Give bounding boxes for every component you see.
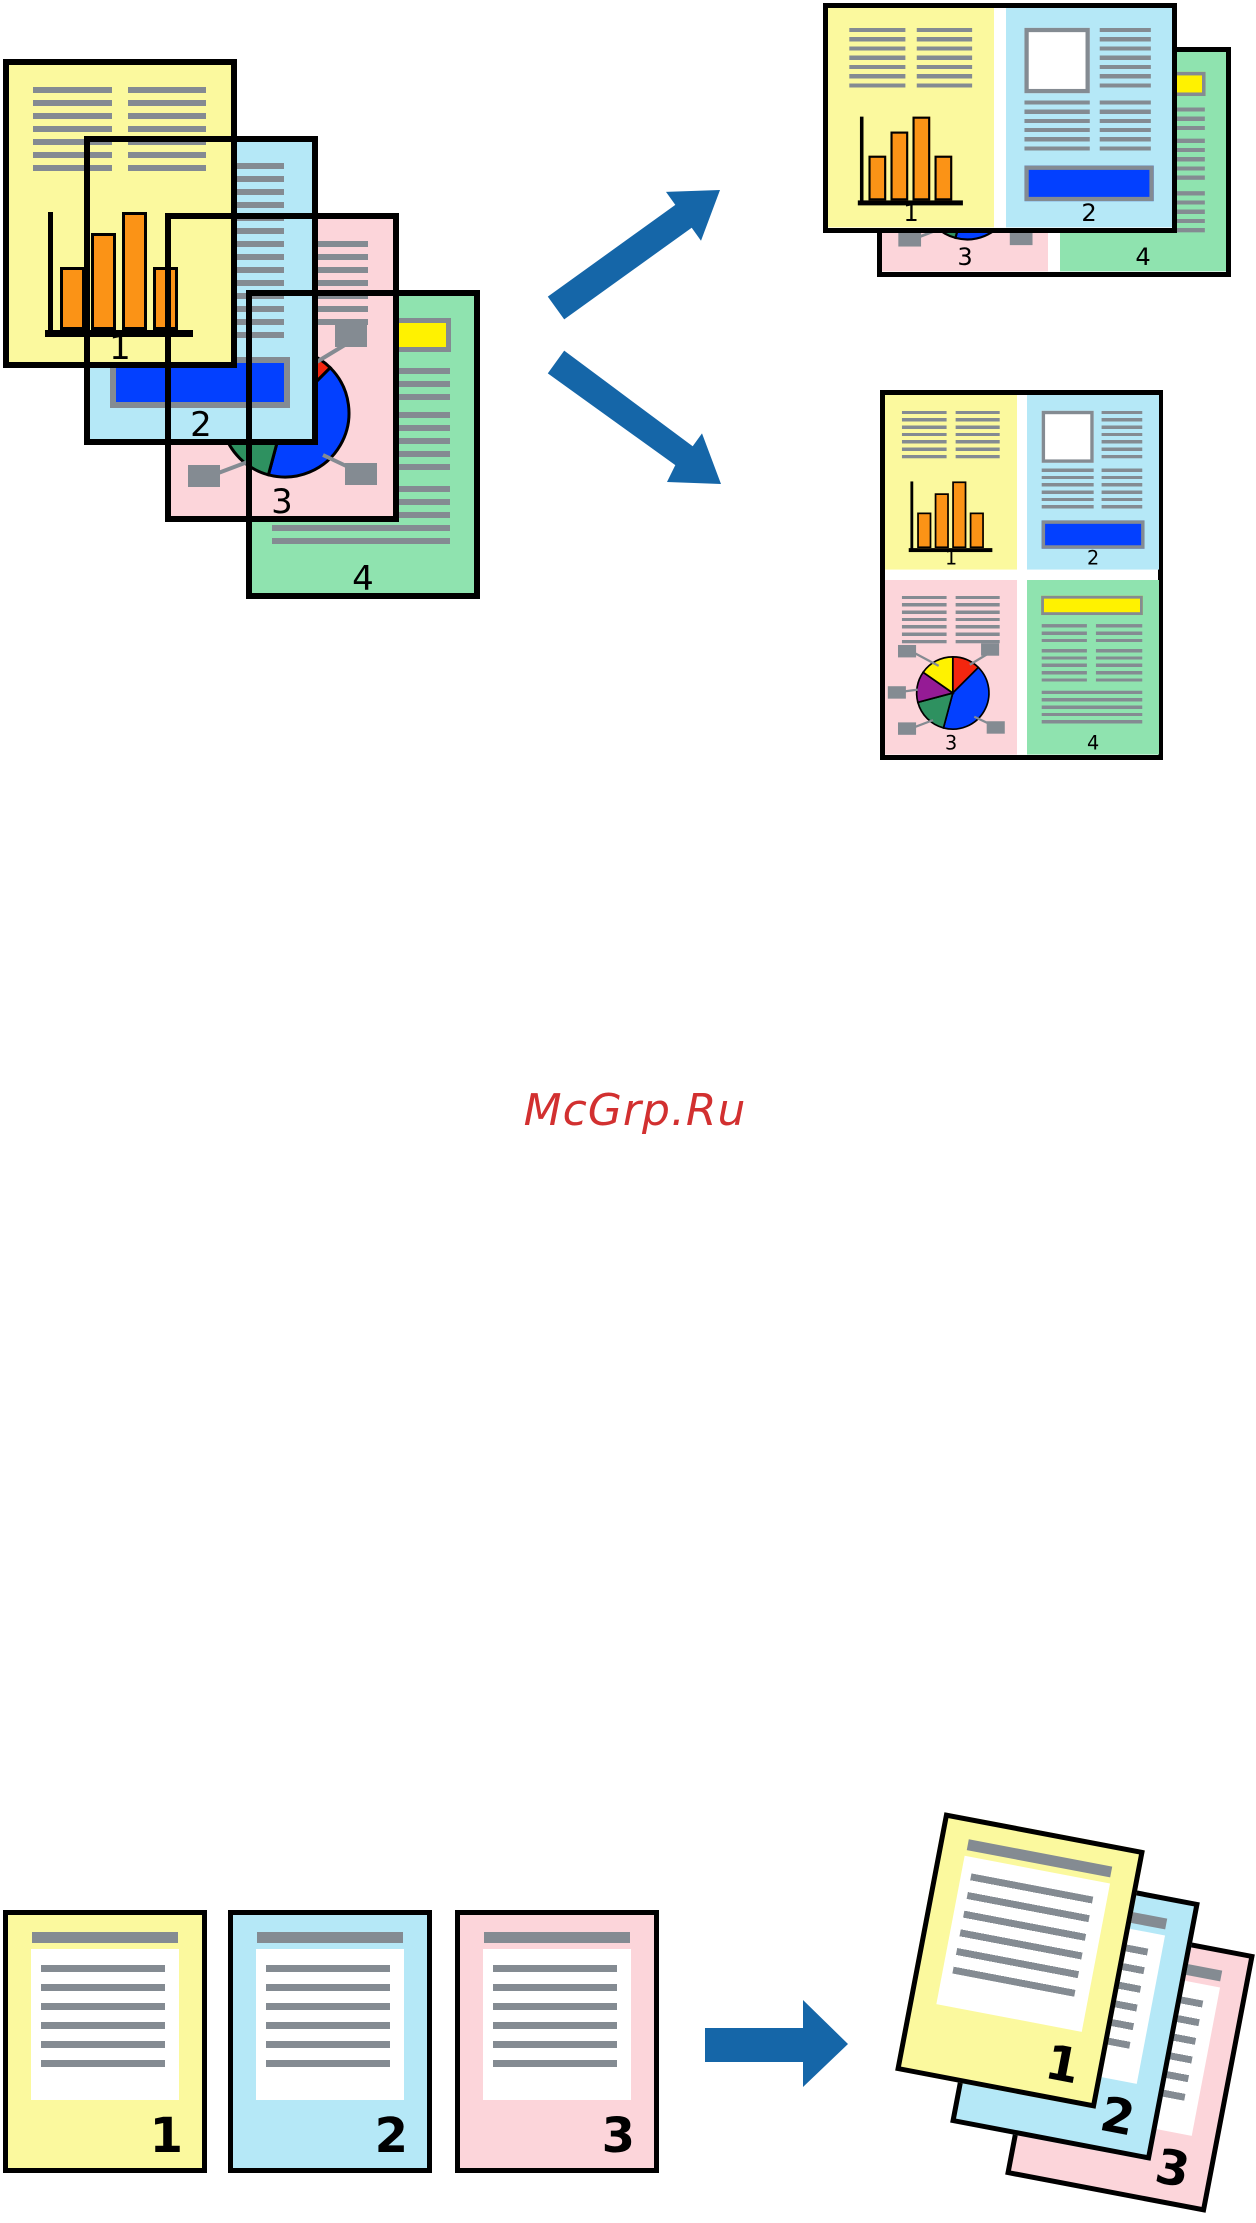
text-lines (849, 28, 905, 88)
page-number: 2 (1027, 549, 1159, 568)
page-number: 3 (602, 2112, 635, 2160)
two-up-sheet-front: 1 2 (823, 3, 1177, 233)
page-number: 4 (1027, 734, 1159, 753)
text-lines (1100, 100, 1151, 150)
four-up-sheet: 1 2 (880, 390, 1163, 760)
bar-chart-y-axis (910, 481, 913, 551)
two-up-page-2: 2 (1006, 8, 1172, 227)
two-up-front-right-half: 2 (1006, 8, 1172, 228)
arrow-up-right-icon (548, 190, 720, 319)
page-number: 4 (1060, 245, 1226, 269)
text-block (31, 1949, 179, 2100)
bar-chart-bar (868, 156, 886, 201)
text-lines (1096, 649, 1142, 682)
page-number: 2 (1006, 201, 1172, 225)
four-up-page-3: 3 (885, 580, 1017, 755)
text-lines (266, 1965, 390, 2067)
bar-chart-bar (890, 132, 908, 201)
text-lines (1100, 28, 1151, 88)
page-number: 4 (246, 562, 480, 596)
input-page-3: 3 (455, 1910, 659, 2173)
four-up-quadrant-1: 1 (885, 395, 1017, 570)
text-block (256, 1949, 404, 2100)
text-lines (1096, 624, 1142, 642)
bar-chart-bar (935, 493, 949, 548)
watermark-text: McGrp.Ru (420, 1085, 850, 1136)
pie-chart (885, 580, 1017, 755)
page-number: 1 (3, 331, 237, 365)
bar-chart-y-axis (860, 117, 864, 205)
nup-collate-illustration: 4 3 (0, 0, 1256, 2223)
title-bar (484, 1932, 630, 1943)
text-block (483, 1949, 631, 2100)
highlight-bar (1041, 596, 1143, 615)
input-page-1: 1 (3, 1910, 207, 2173)
page-number: 3 (885, 734, 1017, 753)
arrow-right-icon (705, 2000, 848, 2087)
text-lines (917, 28, 972, 88)
bar-chart-bar (912, 117, 930, 201)
page-number: 3 (882, 245, 1048, 269)
text-lines (41, 1965, 165, 2067)
text-block (936, 1856, 1110, 2032)
title-bar (257, 1932, 403, 1943)
bar-chart-bar (935, 156, 953, 201)
text-lines (956, 411, 1000, 458)
bar-chart-bar (153, 267, 178, 330)
text-lines (952, 1873, 1093, 1996)
text-lines (493, 1965, 617, 2067)
text-lines (1024, 100, 1089, 150)
title-bar (32, 1932, 178, 1943)
text-lines (33, 87, 112, 171)
four-up-page-4: 4 (1027, 580, 1159, 755)
bar-chart-y-axis (48, 212, 53, 336)
input-page-2: 2 (228, 1910, 432, 2173)
text-lines (1042, 624, 1087, 642)
banner-graphic (1042, 520, 1145, 548)
four-up-page-2: 2 (1027, 395, 1159, 570)
page-number: 1 (150, 2112, 183, 2160)
two-up-page-1: 1 (828, 8, 994, 227)
four-up-quadrant-2: 2 (1027, 395, 1159, 570)
text-lines (1102, 468, 1143, 508)
bar-chart-bar (91, 233, 116, 330)
page-number: 1 (885, 549, 1017, 568)
page-number: 2 (84, 408, 318, 442)
text-lines (128, 87, 206, 171)
text-lines (1042, 691, 1143, 724)
page-number: 2 (375, 2112, 408, 2160)
two-up-front-left-half: 1 (828, 8, 994, 228)
page-number: 1 (828, 201, 994, 225)
arrow-down-right-icon (548, 351, 721, 484)
image-placeholder (1042, 411, 1094, 463)
four-up-page-1: 1 (885, 395, 1017, 570)
bar-chart-bar (952, 481, 966, 548)
bar-chart-bar (917, 513, 931, 549)
four-up-quadrant-4: 4 (1027, 580, 1159, 755)
text-lines (1102, 411, 1143, 458)
image-placeholder (1024, 28, 1089, 93)
four-up-quadrant-3: 3 (885, 580, 1017, 755)
source-page-1: 1 (3, 59, 237, 368)
text-lines (902, 411, 947, 458)
text-lines (1042, 468, 1094, 508)
bar-chart-bar (60, 267, 85, 330)
page-number: 2 (1097, 2090, 1139, 2143)
bar-chart-bar (122, 212, 147, 330)
banner-graphic (1024, 166, 1153, 202)
page-number: 1 (1042, 2038, 1084, 2091)
page-number: 3 (165, 485, 399, 519)
text-lines (1042, 649, 1087, 682)
page-number: 3 (1152, 2142, 1194, 2195)
bar-chart-bar (970, 513, 984, 549)
